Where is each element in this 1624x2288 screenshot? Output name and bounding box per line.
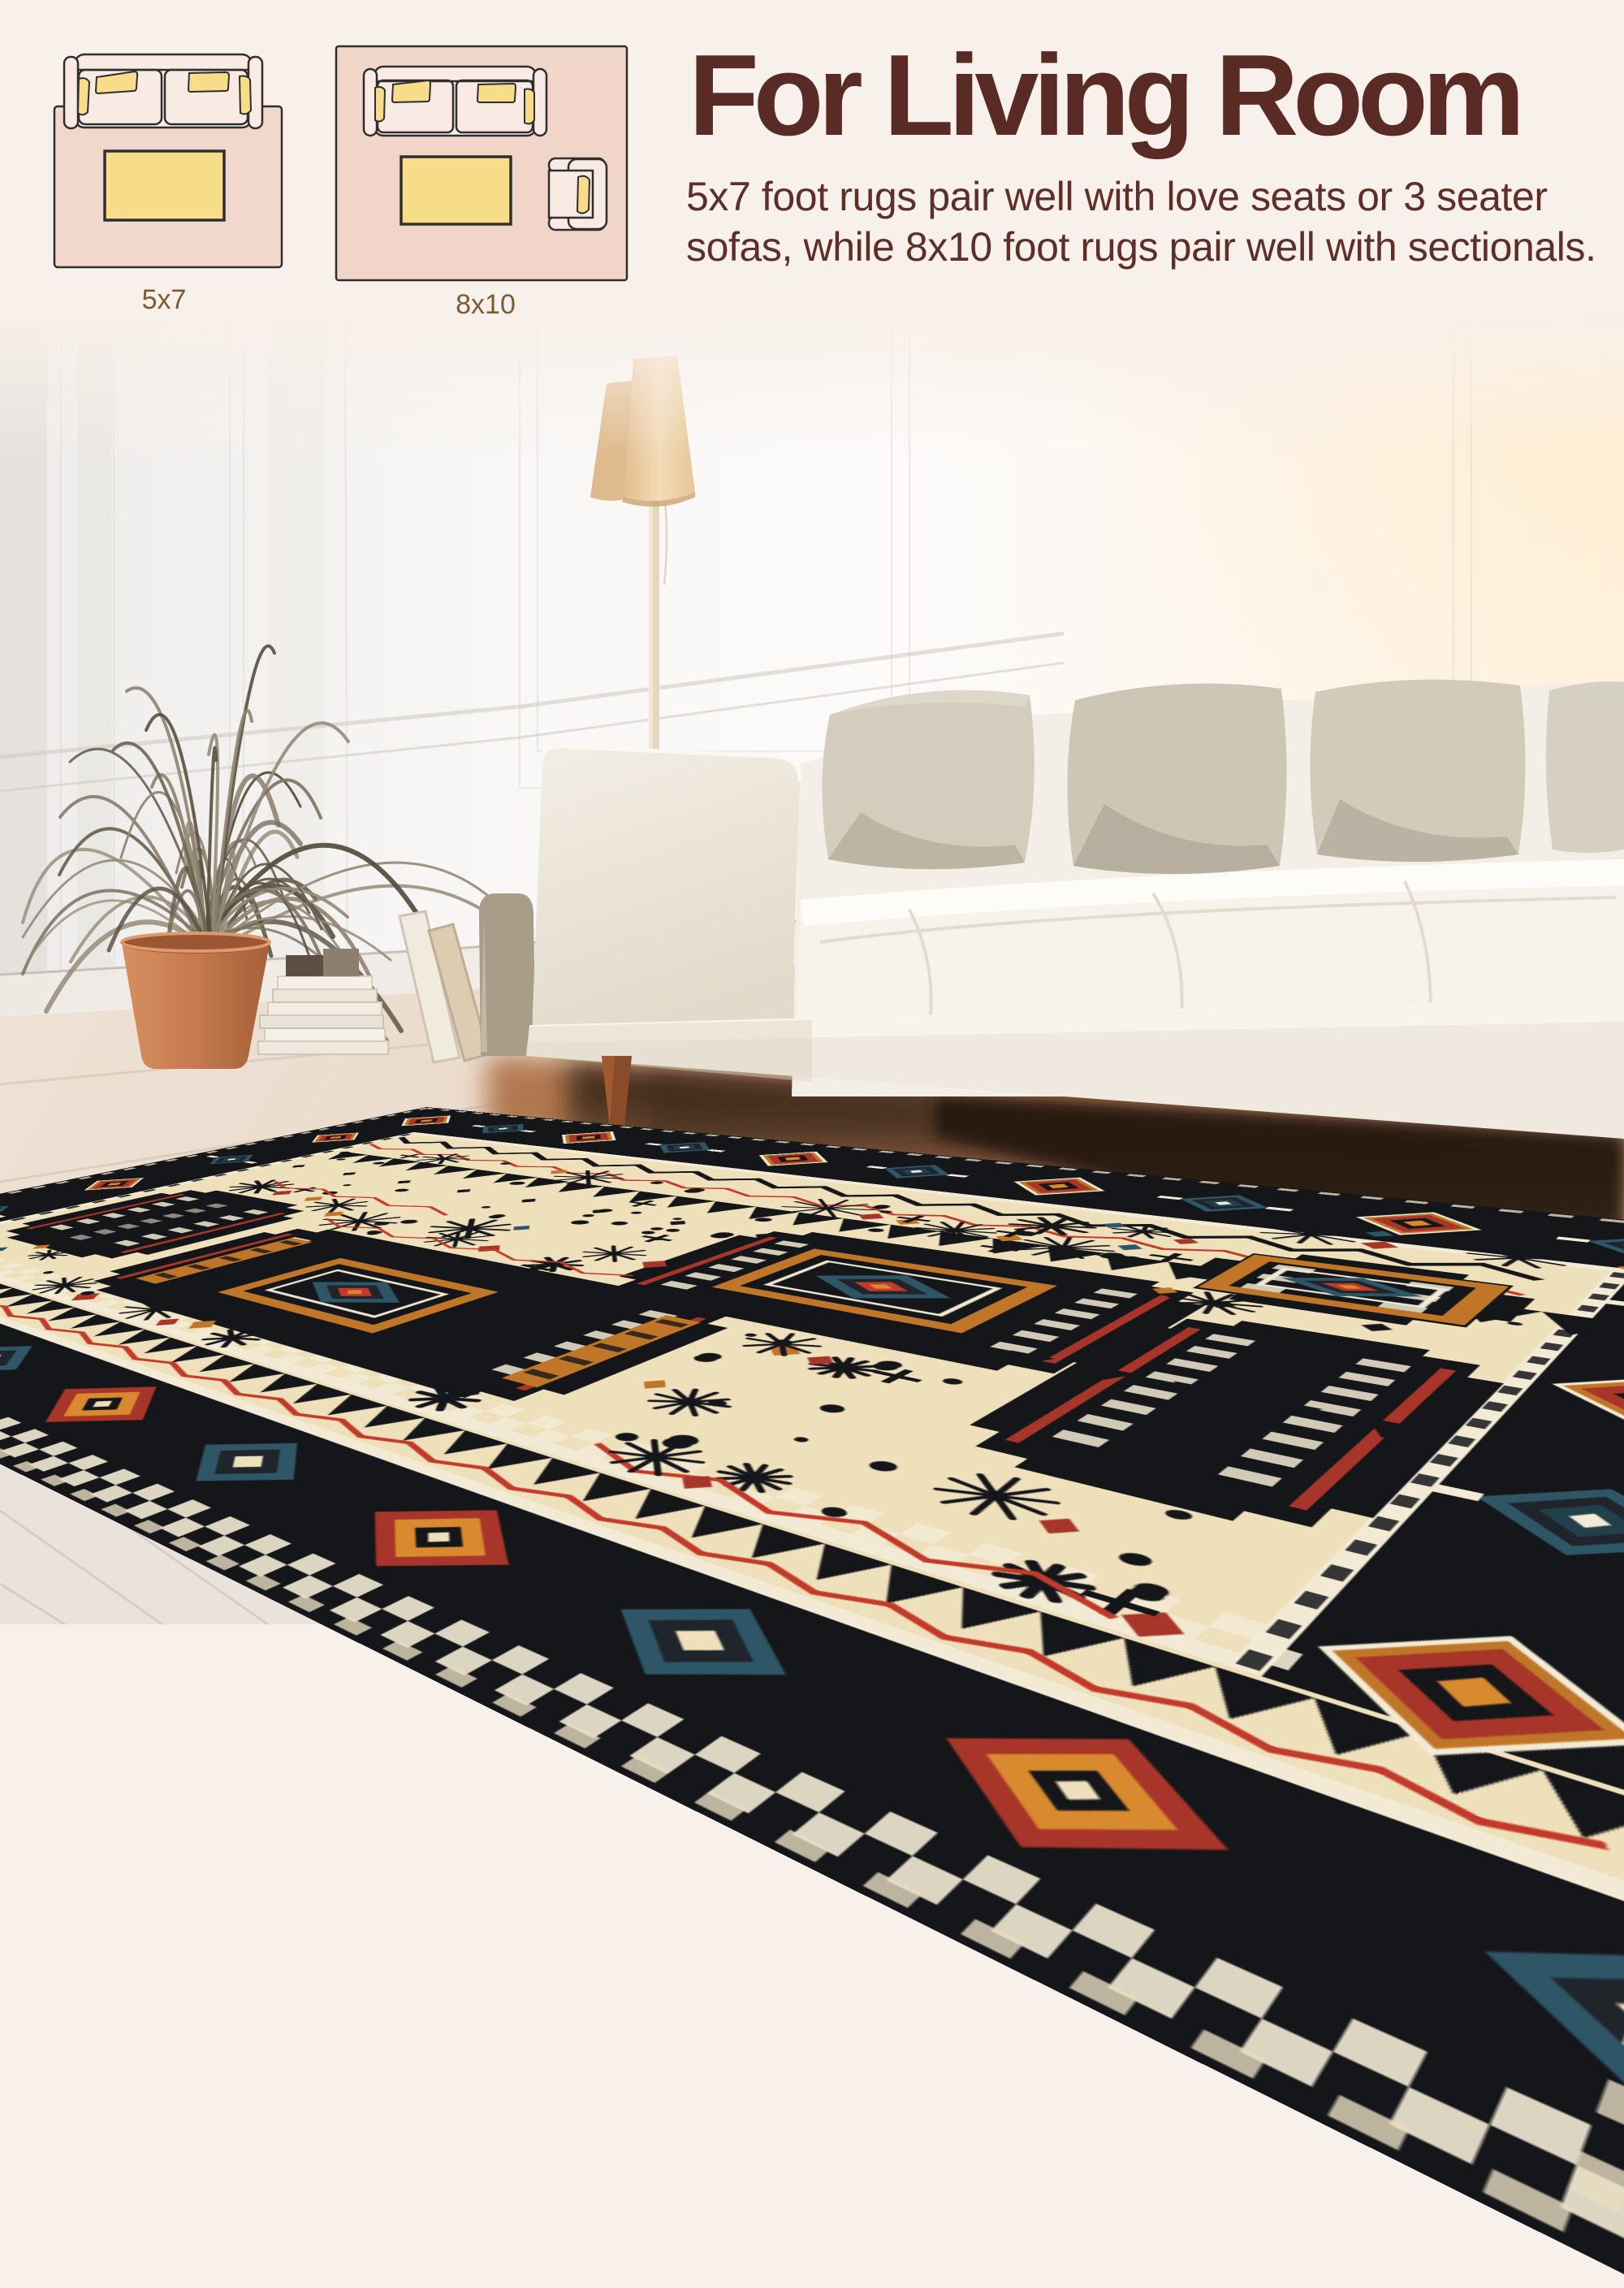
svg-text:8x10: 8x10 bbox=[456, 289, 516, 320]
svg-text:5x7: 5x7 bbox=[142, 284, 187, 315]
